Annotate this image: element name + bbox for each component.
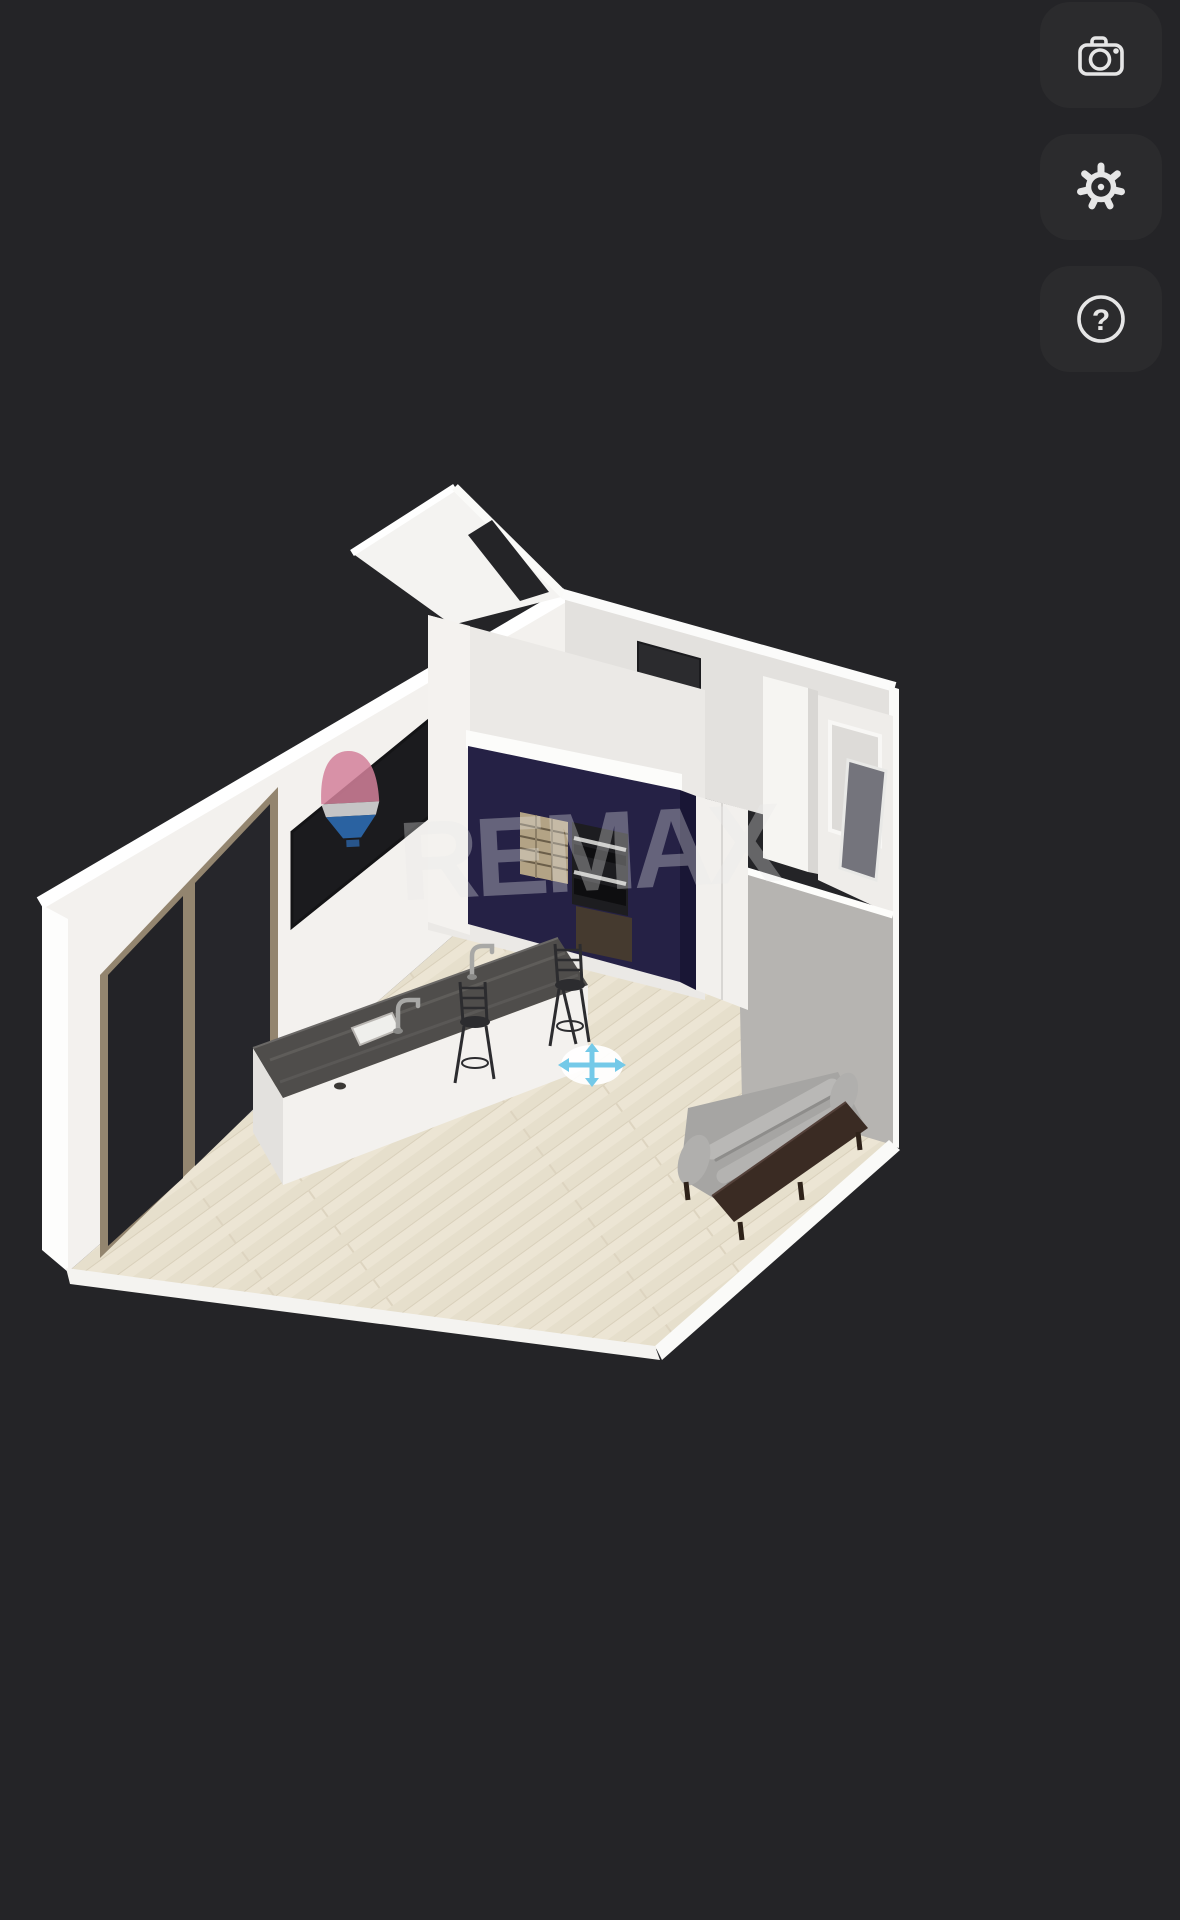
back-wall-gable	[352, 487, 565, 625]
help-button[interactable]: ?	[1040, 266, 1162, 372]
gear-icon	[1072, 158, 1130, 216]
mirror	[840, 760, 886, 880]
camera-icon	[1072, 26, 1130, 84]
camera-button[interactable]	[1040, 2, 1162, 108]
watermark-text: REMAX	[395, 779, 785, 924]
floorplan-3d-viewport[interactable]: REMAX	[0, 0, 1180, 1920]
app-window: REMAX	[0, 0, 1180, 1920]
question-glyph: ?	[1092, 304, 1110, 337]
wall-end-cap	[42, 905, 68, 1272]
question-icon: ?	[1072, 290, 1130, 348]
drain	[334, 1083, 346, 1090]
toolbar: ?	[1040, 2, 1162, 372]
settings-button[interactable]	[1040, 134, 1162, 240]
